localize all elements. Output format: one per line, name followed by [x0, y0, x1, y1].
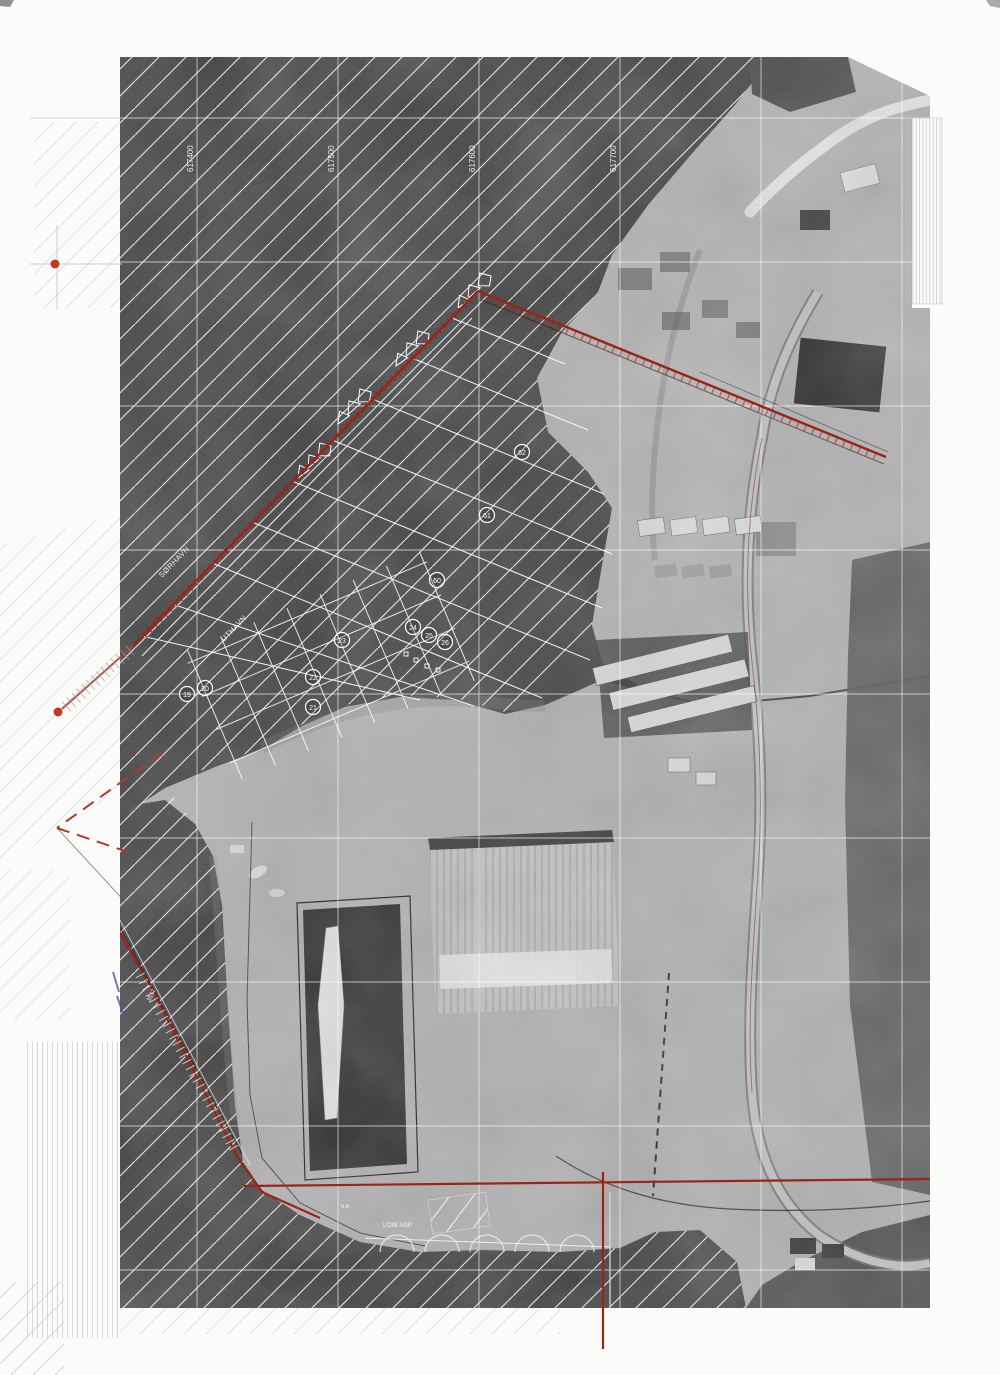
svg-text:22: 22 [309, 675, 317, 682]
scanned-map-sheet: 617400 617500 617600 617700 [0, 0, 1000, 1375]
survey-marker: 62 [515, 445, 530, 460]
survey-marker: 23 [335, 633, 350, 648]
margin-hatch-left [0, 515, 120, 868]
aerial-photo: 617400 617500 617600 617700 [96, 57, 930, 1308]
svg-text:19: 19 [183, 692, 191, 699]
survey-marker: 60 [430, 573, 445, 588]
grid-label-617400: 617400 [186, 145, 195, 172]
aerial-survey-map: 617400 617500 617600 617700 [0, 0, 1000, 1375]
survey-dot-upper [51, 260, 60, 269]
survey-marker: 25 [422, 628, 437, 643]
survey-marker: 26 [438, 635, 453, 650]
survey-marker: 24 [406, 620, 421, 635]
survey-marker: 22 [306, 670, 321, 685]
margin-hatch-topleft [34, 122, 120, 308]
grid-label-617600: 617600 [468, 145, 477, 172]
grid-label-617500: 617500 [327, 145, 336, 172]
survey-marker: 21 [306, 700, 321, 715]
survey-marker: 61 [480, 508, 495, 523]
svg-text:26: 26 [441, 640, 449, 647]
survey-dot-lower [54, 708, 63, 717]
svg-text:25: 25 [425, 633, 433, 640]
survey-marker: 19 [180, 687, 195, 702]
quay-label: LOW ASP [383, 1222, 412, 1229]
scan-artifact-topright [986, 0, 1000, 8]
margin-hatch-left-lower [0, 870, 70, 1020]
svg-text:20: 20 [201, 686, 209, 693]
svg-text:21: 21 [309, 705, 317, 712]
survey-marker: 20 [198, 681, 213, 696]
hatch-below-photo [120, 1308, 560, 1334]
grid-label-617700: 617700 [609, 145, 618, 172]
svg-text:23: 23 [338, 638, 346, 645]
scan-artifact-topleft [0, 0, 14, 7]
margin-hatch-corner [0, 1282, 64, 1375]
svg-text:62: 62 [518, 450, 526, 457]
svg-text:60: 60 [433, 578, 441, 585]
margin-legend-block [906, 118, 942, 304]
svg-text:24: 24 [409, 625, 417, 632]
svg-text:61: 61 [483, 513, 491, 520]
quay-small-label: 5,6 [341, 1204, 350, 1210]
